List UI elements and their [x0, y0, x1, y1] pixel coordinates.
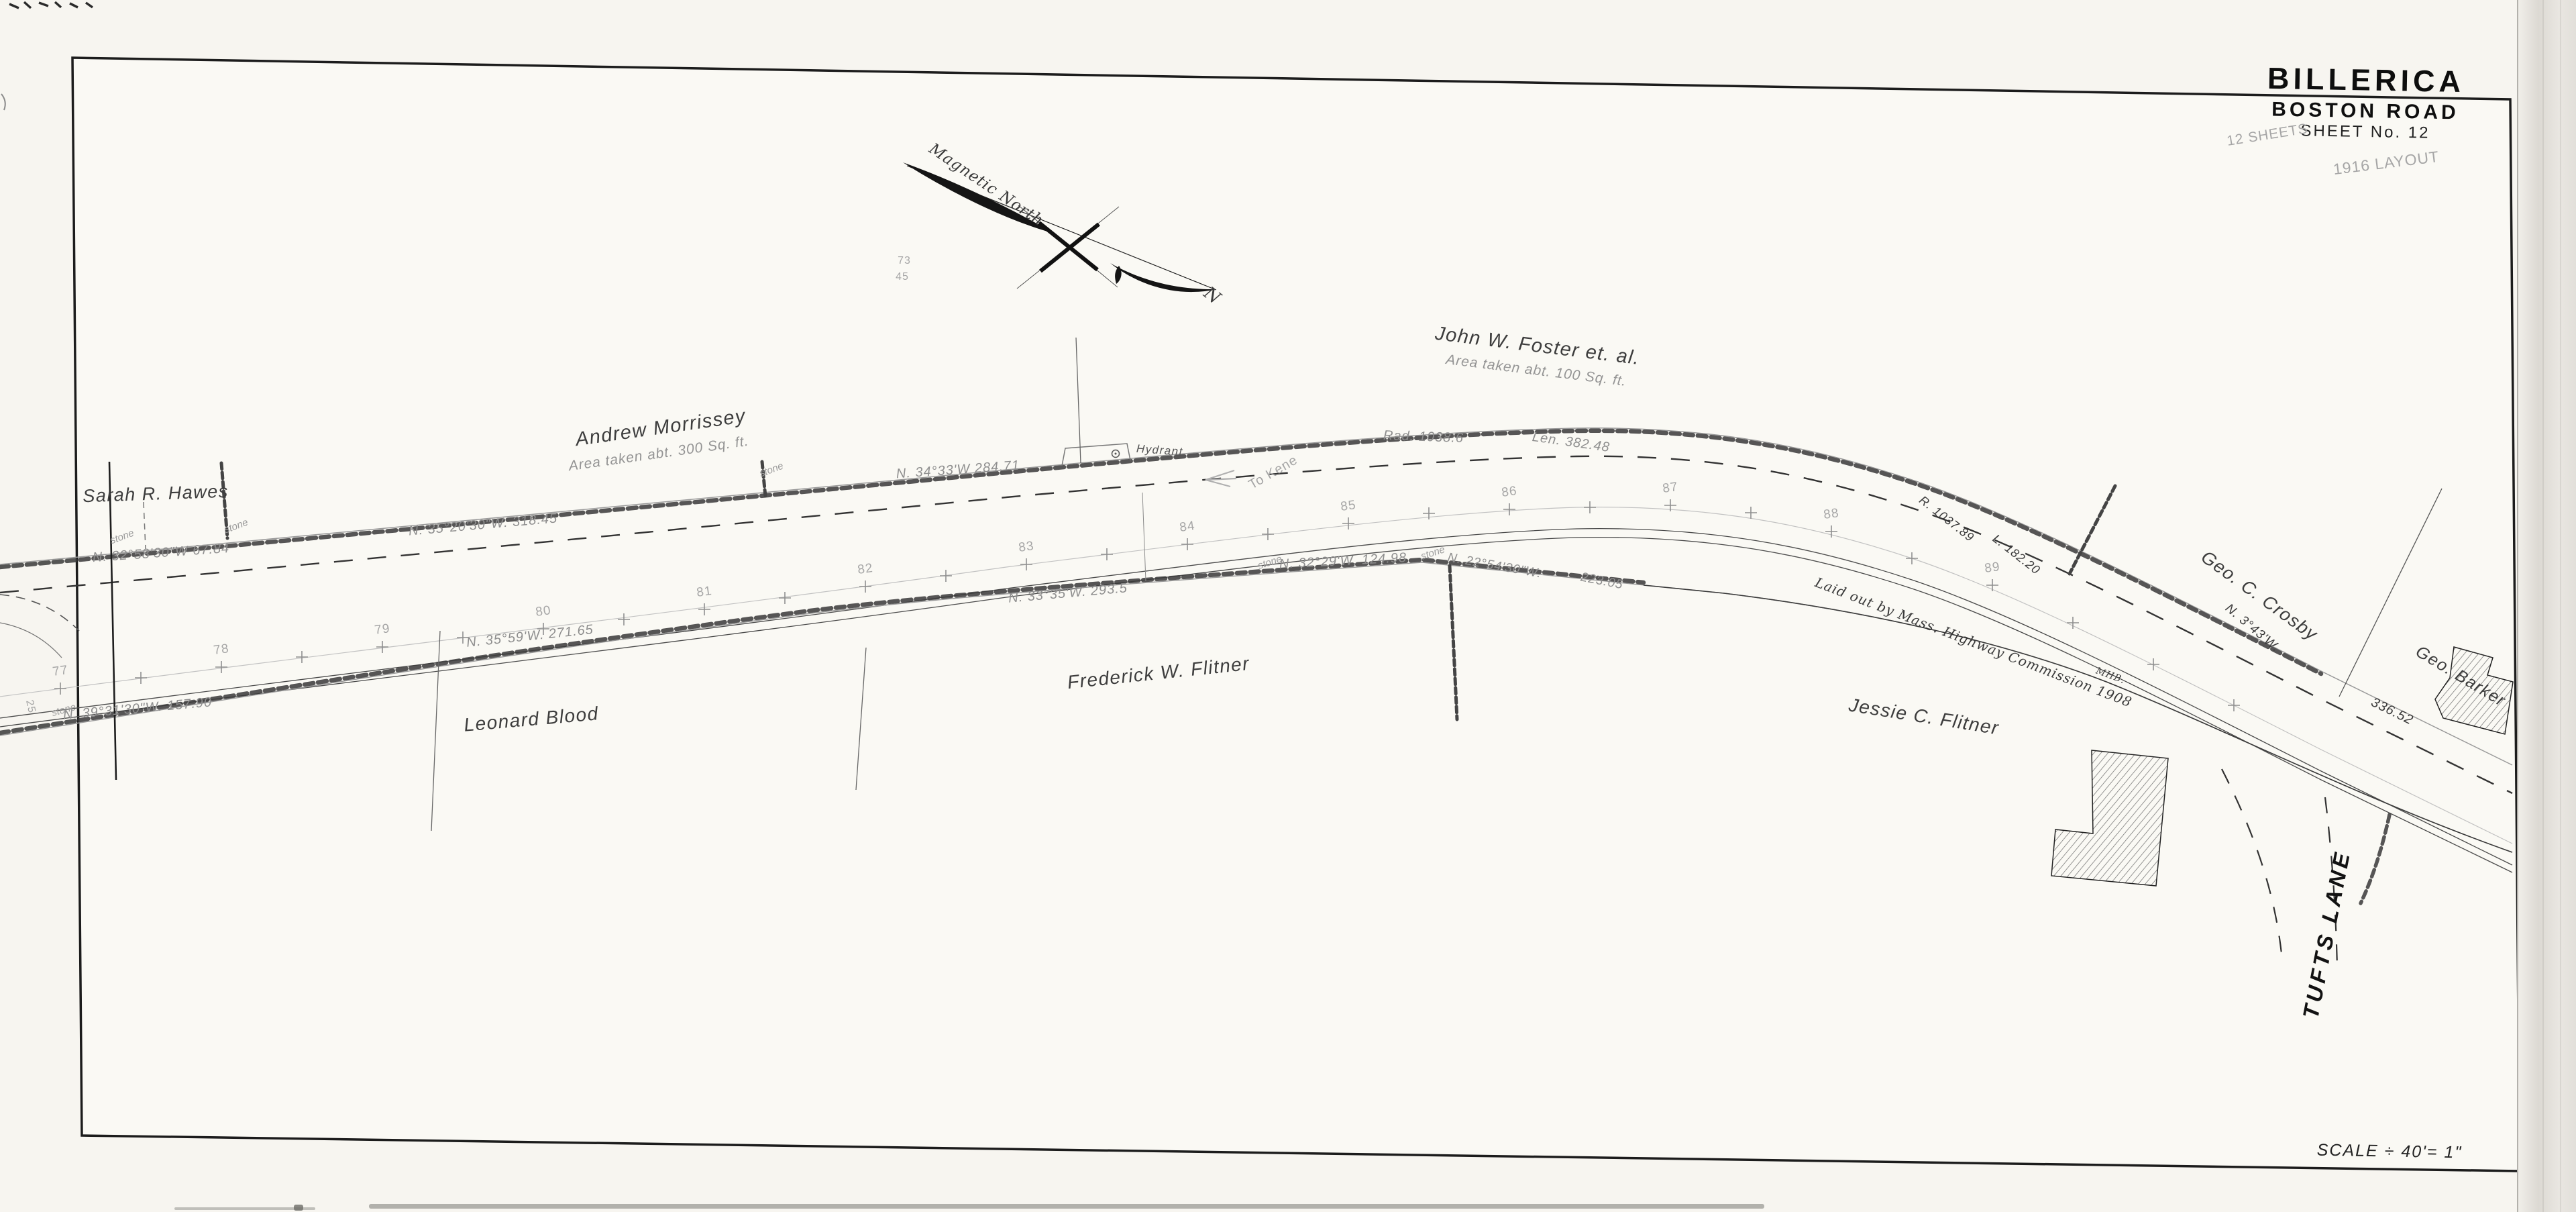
pencil-fig-c: 25 [23, 699, 37, 715]
plan-linework [0, 0, 2576, 1212]
paper-wrinkle [2560, 0, 2561, 1212]
left-intersection [0, 595, 79, 658]
station-label: 78 [213, 642, 230, 657]
station-label: 81 [696, 585, 713, 599]
paper-wrinkle [2542, 0, 2544, 1212]
station-label: 83 [1018, 540, 1035, 554]
pencil-fig-b: 45 [896, 272, 909, 283]
sheet-title-town: BILLERICA [2267, 63, 2465, 97]
station-label: 86 [1501, 485, 1518, 499]
station-label: 79 [374, 622, 391, 637]
station-label: 85 [1340, 499, 1357, 513]
scale-note: SCALE ÷ 40'= 1" [2317, 1142, 2463, 1162]
scanned-plan-sheet: BILLERICA BOSTON ROAD SHEET No. 12 12 SH… [0, 0, 2576, 1212]
station-label: 88 [1823, 507, 1840, 521]
sheet-title-road: BOSTON ROAD [2271, 100, 2459, 123]
sheet-number: SHEET No. 12 [2300, 123, 2430, 141]
station-label: 77 [52, 664, 69, 678]
station-label: 84 [1179, 519, 1196, 534]
scan-page-edge [2517, 0, 2576, 1212]
bearing-rad: Rad. 1038.6 [1383, 429, 1464, 445]
scan-smudge [369, 1204, 1764, 1209]
pencil-fig-a: 73 [898, 256, 911, 266]
station-label: 82 [857, 562, 874, 576]
station-label: 80 [535, 604, 552, 619]
station-label: 89 [1984, 560, 2001, 575]
scan-smudge [294, 1205, 303, 1211]
station-label: 87 [1662, 481, 1679, 495]
